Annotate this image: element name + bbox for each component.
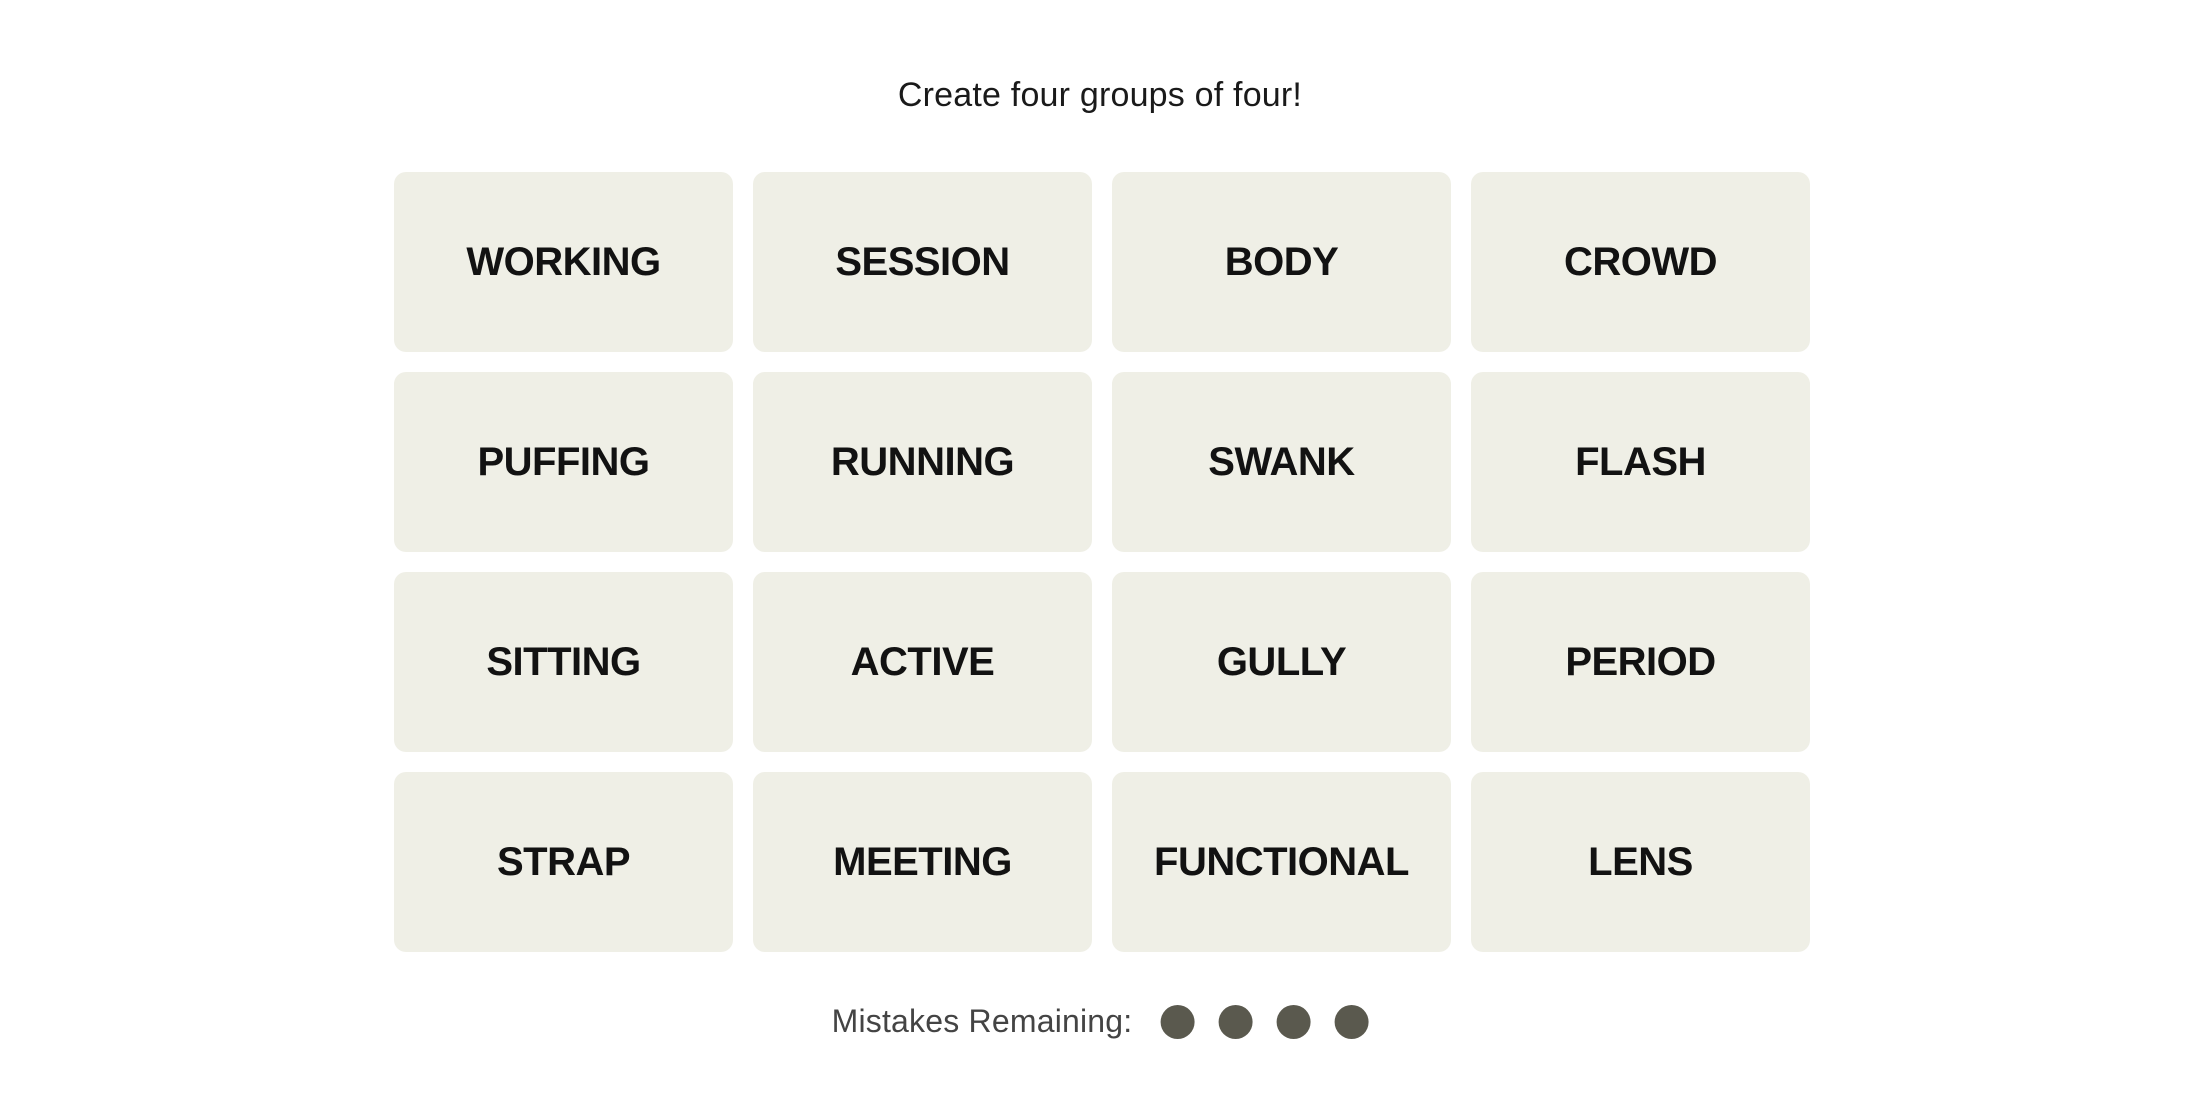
word-tile[interactable]: LENS (1471, 772, 1810, 952)
mistake-dot (1334, 1005, 1368, 1039)
word-tile[interactable]: SITTING (394, 572, 733, 752)
word-tile[interactable]: SWANK (1112, 372, 1451, 552)
word-tile[interactable]: GULLY (1112, 572, 1451, 752)
word-tile[interactable]: PUFFING (394, 372, 733, 552)
word-tile[interactable]: WORKING (394, 172, 733, 352)
word-tile[interactable]: PERIOD (1471, 572, 1810, 752)
word-tile[interactable]: FLASH (1471, 372, 1810, 552)
word-tile[interactable]: MEETING (753, 772, 1092, 952)
word-tile[interactable]: BODY (1112, 172, 1451, 352)
word-tile[interactable]: CROWD (1471, 172, 1810, 352)
word-tile[interactable]: FUNCTIONAL (1112, 772, 1451, 952)
word-tile[interactable]: ACTIVE (753, 572, 1092, 752)
mistakes-dots (1160, 1005, 1368, 1039)
mistakes-remaining-label: Mistakes Remaining: (832, 1003, 1133, 1040)
word-tile[interactable]: RUNNING (753, 372, 1092, 552)
mistake-dot (1160, 1005, 1194, 1039)
mistakes-remaining-section: Mistakes Remaining: (832, 1003, 1369, 1040)
mistake-dot (1218, 1005, 1252, 1039)
word-tile[interactable]: STRAP (394, 772, 733, 952)
puzzle-instructions: Create four groups of four! (0, 76, 2200, 115)
word-tile[interactable]: SESSION (753, 172, 1092, 352)
word-grid: WORKING SESSION BODY CROWD PUFFING RUNNI… (394, 172, 1810, 952)
mistake-dot (1276, 1005, 1310, 1039)
